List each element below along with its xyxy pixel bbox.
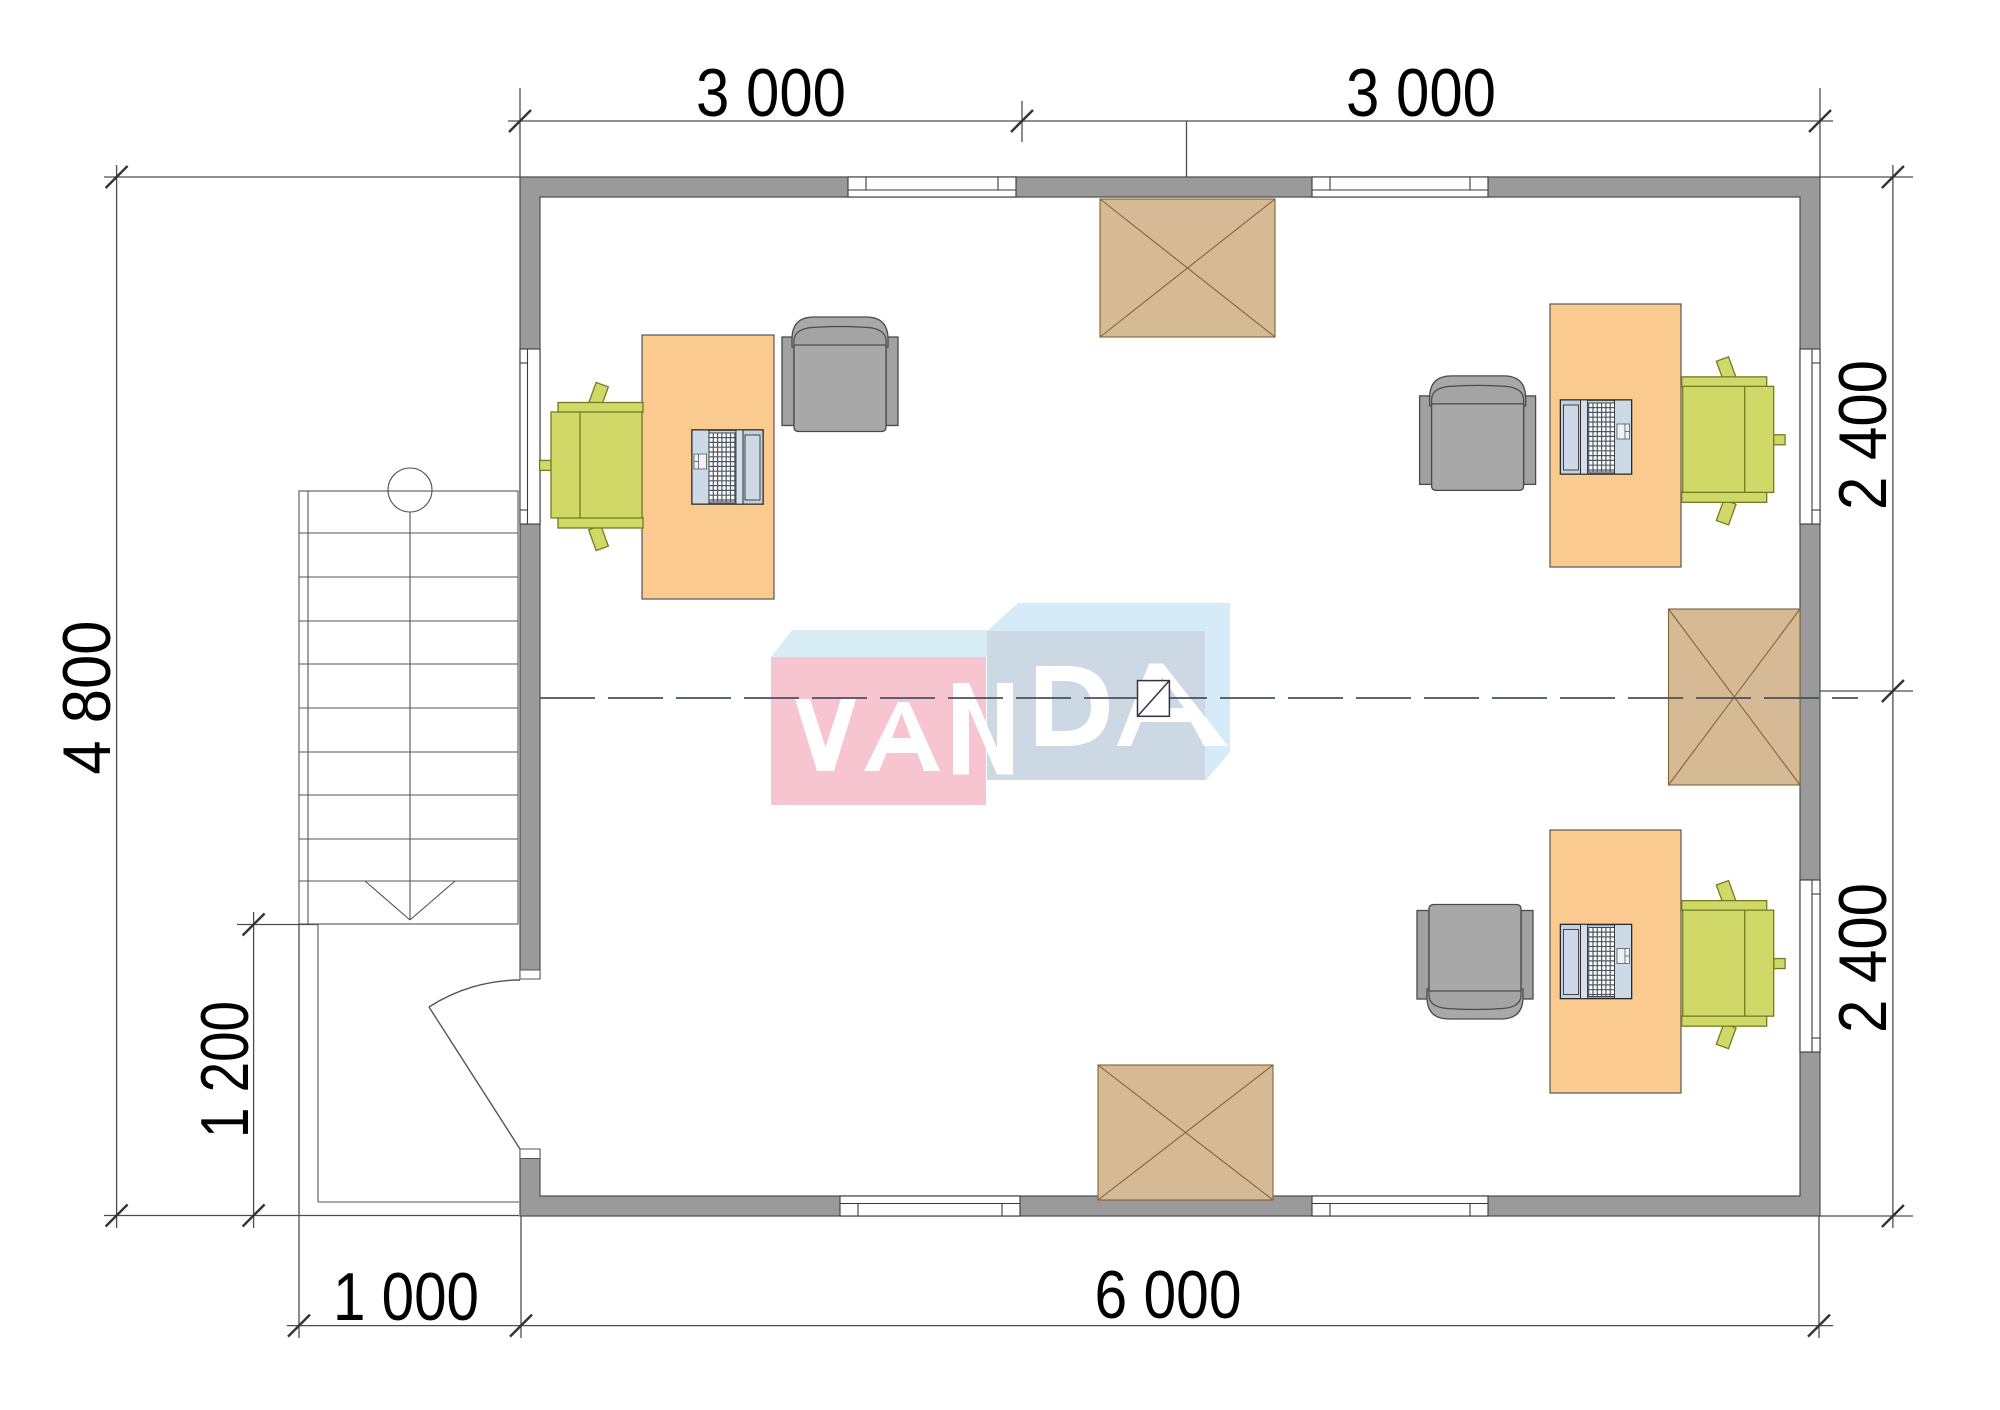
svg-text:2 400: 2 400 [1825, 883, 1901, 1033]
svg-text:3 000: 3 000 [1346, 55, 1496, 131]
svg-text:6 000: 6 000 [1095, 1257, 1242, 1333]
svg-text:4 800: 4 800 [49, 621, 125, 775]
svg-text:1 200: 1 200 [187, 1001, 263, 1138]
svg-text:2 400: 2 400 [1825, 360, 1901, 510]
svg-text:3 000: 3 000 [696, 55, 846, 131]
svg-text:1 000: 1 000 [333, 1259, 479, 1335]
